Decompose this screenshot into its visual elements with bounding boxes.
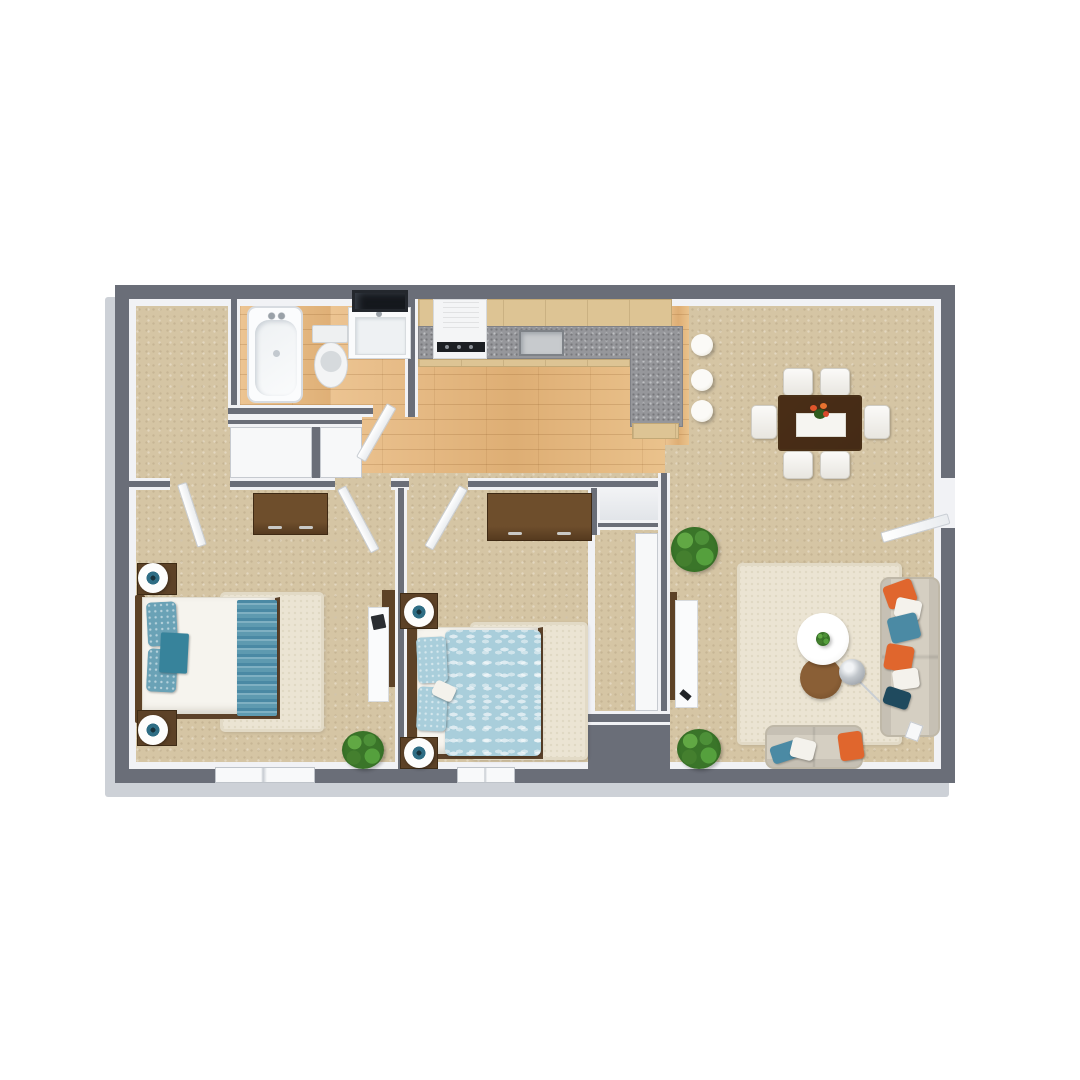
bedroom1-lamp-top [138,563,168,593]
bedroom2-lamp-top [404,597,434,627]
bathtub-drain [273,350,280,357]
bedroom1-plant [342,731,384,769]
living-plant-bottom [677,729,721,769]
closet2-sliding-door [635,533,658,711]
wall-bathroom-south [228,405,373,417]
arc-lamp-shade [839,659,865,685]
coffee-table-plant [816,632,830,646]
kitchen-l-cabinet-face [632,423,679,439]
bedroom2-pillow-1 [416,636,448,684]
dining-chair-right [864,405,890,439]
hall-closet-door-left [230,427,312,478]
toilet-tank [312,325,348,343]
hall-closet-divider [312,427,320,478]
bathtub-basin [255,320,297,396]
dining-chair-top-2 [820,368,850,396]
bar-stool-1 [691,334,713,356]
kitchen-counter-l-return [630,326,683,427]
loveseat-pillow-orange [837,730,865,761]
bedroom1-window [215,767,315,783]
dining-chair-left [751,405,777,439]
bedroom1-dresser [253,493,328,535]
bar-stool-2 [691,369,713,391]
kitchen-base-cabinets [418,359,633,367]
wall-closet2-south [588,711,670,725]
dining-chair-bottom-2 [820,451,850,479]
bedroom1-laptop [371,614,387,630]
range-hood [443,302,479,330]
flower-centerpiece [808,401,832,421]
wall-hall-closet-north [228,417,362,427]
living-plant-top [671,527,718,572]
wall-closet2-mid [598,520,660,530]
bedroom1-bed-runner [237,600,277,716]
wall-bedroom1-north-a [129,478,170,490]
bedroom2-window [457,767,515,783]
bathtub-faucet [265,310,287,322]
closet2-track [588,535,595,711]
bathroom-mirror [352,290,408,312]
bedroom2-duvet [445,630,541,756]
dining-chair-top-1 [783,368,813,396]
sofa-pillow-white-2 [892,667,921,690]
bathtub [247,306,303,403]
floor-plan-image [0,0,1080,1080]
wall-chase-block [588,725,670,769]
vanity-sink [355,317,406,355]
wall-closet-bathroom [228,299,240,417]
bedroom2-lamp-bottom [404,738,434,768]
bar-stool-3 [691,400,713,422]
wall-bedroom1-north-b [230,478,335,490]
dining-chair-bottom-1 [783,451,813,479]
wall-closet2-east [658,473,670,713]
floor-plan [115,285,955,783]
bedroom1-throw-blanket [159,632,189,673]
kitchen-sink [519,330,564,356]
hall-closet-door-right [320,427,362,478]
bathroom-vanity [348,307,411,359]
range [433,299,487,359]
range-controls [437,342,485,352]
bedroom2-dresser [487,493,592,541]
toilet-bowl [314,342,348,388]
bedroom1-lamp-bottom [138,715,168,745]
closet2-shelf [600,488,658,520]
